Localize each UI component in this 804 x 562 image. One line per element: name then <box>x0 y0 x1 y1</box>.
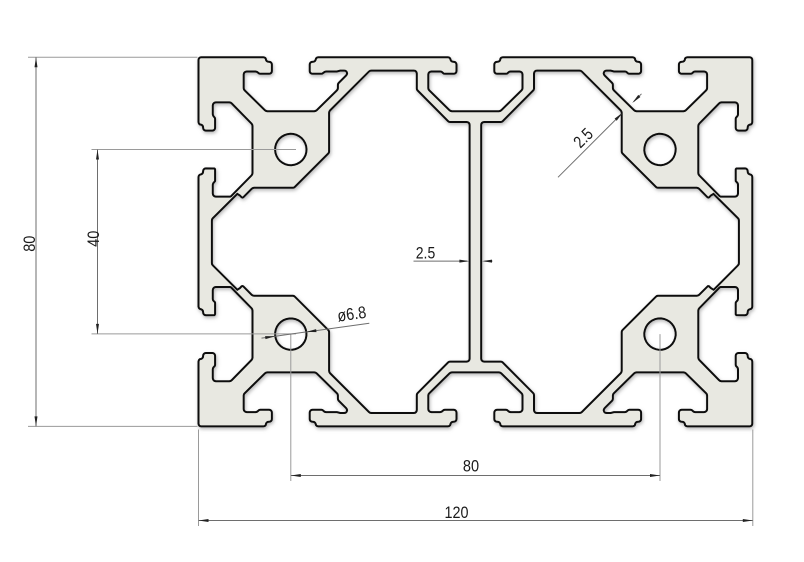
svg-text:40: 40 <box>84 231 103 247</box>
svg-text:80: 80 <box>463 457 479 476</box>
svg-text:ø6.8: ø6.8 <box>336 303 367 326</box>
svg-text:2.5: 2.5 <box>570 124 597 151</box>
svg-text:80: 80 <box>20 236 39 252</box>
svg-text:120: 120 <box>445 503 469 522</box>
svg-text:2.5: 2.5 <box>416 244 436 263</box>
